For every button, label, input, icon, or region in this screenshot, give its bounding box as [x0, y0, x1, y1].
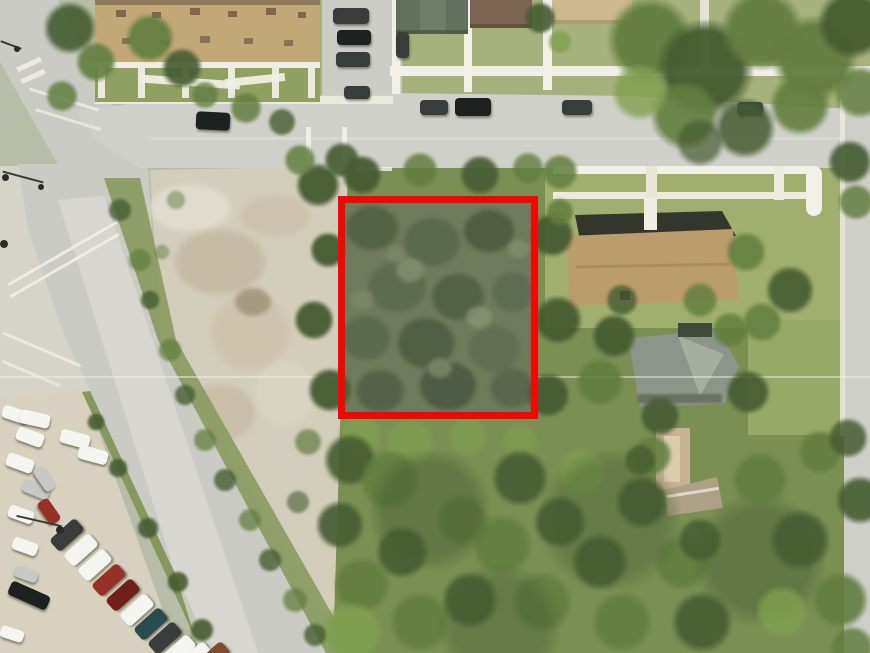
tree-canopy: [592, 592, 652, 652]
dirt-patch: [255, 360, 315, 426]
tree-canopy: [213, 468, 237, 492]
tree-canopy: [770, 510, 830, 570]
sidewalk: [774, 166, 784, 200]
car: [455, 98, 491, 116]
roof-vent: [266, 8, 276, 15]
roof-vent: [298, 12, 306, 18]
tree-canopy: [606, 284, 638, 316]
tree-canopy: [342, 155, 382, 195]
tree-canopy: [174, 384, 196, 406]
tree-canopy: [158, 338, 182, 362]
tree-canopy: [370, 450, 490, 570]
tree-canopy: [548, 30, 572, 54]
tree-canopy: [732, 452, 788, 508]
tree-canopy: [268, 108, 296, 136]
tree-canopy: [190, 618, 214, 642]
tree-canopy: [540, 450, 680, 590]
tree-canopy: [128, 248, 152, 272]
utility-pole: [56, 526, 64, 534]
car: [396, 32, 409, 58]
car: [196, 111, 231, 131]
tree-canopy: [193, 428, 217, 452]
car: [336, 52, 370, 67]
tree-canopy: [258, 548, 282, 572]
dirt-patch: [150, 185, 230, 231]
tree-canopy: [546, 198, 574, 226]
tree-canopy: [682, 282, 718, 318]
tree-canopy: [108, 458, 128, 478]
tree-canopy: [46, 80, 78, 112]
utility-pole: [14, 46, 20, 52]
sidewalk-corner: [806, 166, 822, 216]
roof-vent: [284, 40, 293, 46]
tree-canopy: [834, 66, 870, 118]
tree-canopy: [726, 370, 770, 414]
car: [420, 100, 448, 115]
utility-pole: [0, 240, 8, 248]
tree-canopy: [140, 290, 160, 310]
tree-canopy: [402, 152, 438, 188]
tree-canopy: [756, 586, 808, 638]
tree-canopy: [460, 155, 500, 195]
roof-vent: [190, 8, 200, 15]
tree-canopy: [830, 626, 870, 653]
gray-house-dark-bar: [678, 323, 712, 337]
tree-canopy: [838, 184, 870, 220]
building-walkway: [644, 198, 657, 230]
tree-canopy: [282, 587, 308, 613]
tree-canopy: [191, 81, 219, 109]
aerial-map: [0, 0, 870, 653]
tree-canopy: [676, 118, 724, 166]
tree-canopy: [726, 232, 766, 272]
car: [333, 8, 369, 24]
tree-canopy: [303, 623, 327, 647]
tree-canopy: [322, 602, 382, 653]
tree-canopy: [167, 571, 189, 593]
parcel-outline: [338, 196, 538, 419]
house-roof-shade: [420, 0, 446, 34]
tree-canopy: [286, 490, 310, 514]
roof-vent: [244, 38, 253, 44]
tree-canopy: [742, 302, 782, 342]
tree-canopy: [534, 296, 582, 344]
tree-canopy: [294, 428, 322, 456]
tree-canopy: [592, 314, 636, 358]
tree-canopy: [284, 144, 316, 176]
roof-vent: [228, 11, 237, 17]
tree-canopy: [76, 42, 116, 82]
dirt-mound: [235, 288, 271, 316]
utility-pole: [2, 174, 9, 181]
tree-canopy: [818, 0, 870, 58]
apartment-walkway-line: [95, 62, 320, 68]
tree-canopy: [137, 517, 159, 539]
tree-canopy: [316, 501, 364, 549]
house-eave: [470, 24, 532, 28]
tree-canopy: [154, 244, 170, 260]
tree-canopy: [828, 140, 870, 184]
tree-canopy: [166, 190, 186, 210]
tree-canopy: [108, 198, 132, 222]
car: [562, 100, 592, 115]
tree-canopy: [640, 396, 680, 436]
tree-canopy: [715, 98, 775, 158]
walkway-bar: [308, 66, 315, 98]
tree-canopy: [230, 92, 262, 124]
tree-canopy: [576, 358, 624, 406]
dirt-patch: [175, 230, 265, 294]
apartment-roof-edge: [95, 0, 320, 5]
tree-canopy: [512, 152, 544, 184]
roof-vent: [200, 36, 210, 43]
tree-canopy: [542, 154, 578, 190]
car: [344, 86, 370, 99]
sidewalk: [840, 80, 845, 436]
tree-canopy: [238, 508, 262, 532]
tree-canopy: [294, 300, 334, 340]
roof-vent: [116, 10, 126, 17]
tree-canopy: [812, 572, 868, 628]
utility-pole: [38, 184, 44, 190]
car: [337, 30, 371, 45]
tree-canopy: [828, 418, 868, 458]
tree-canopy: [836, 476, 870, 524]
tree-canopy: [612, 64, 668, 120]
tree-canopy: [770, 75, 830, 135]
tree-canopy: [440, 565, 560, 653]
tree-canopy: [87, 413, 105, 431]
